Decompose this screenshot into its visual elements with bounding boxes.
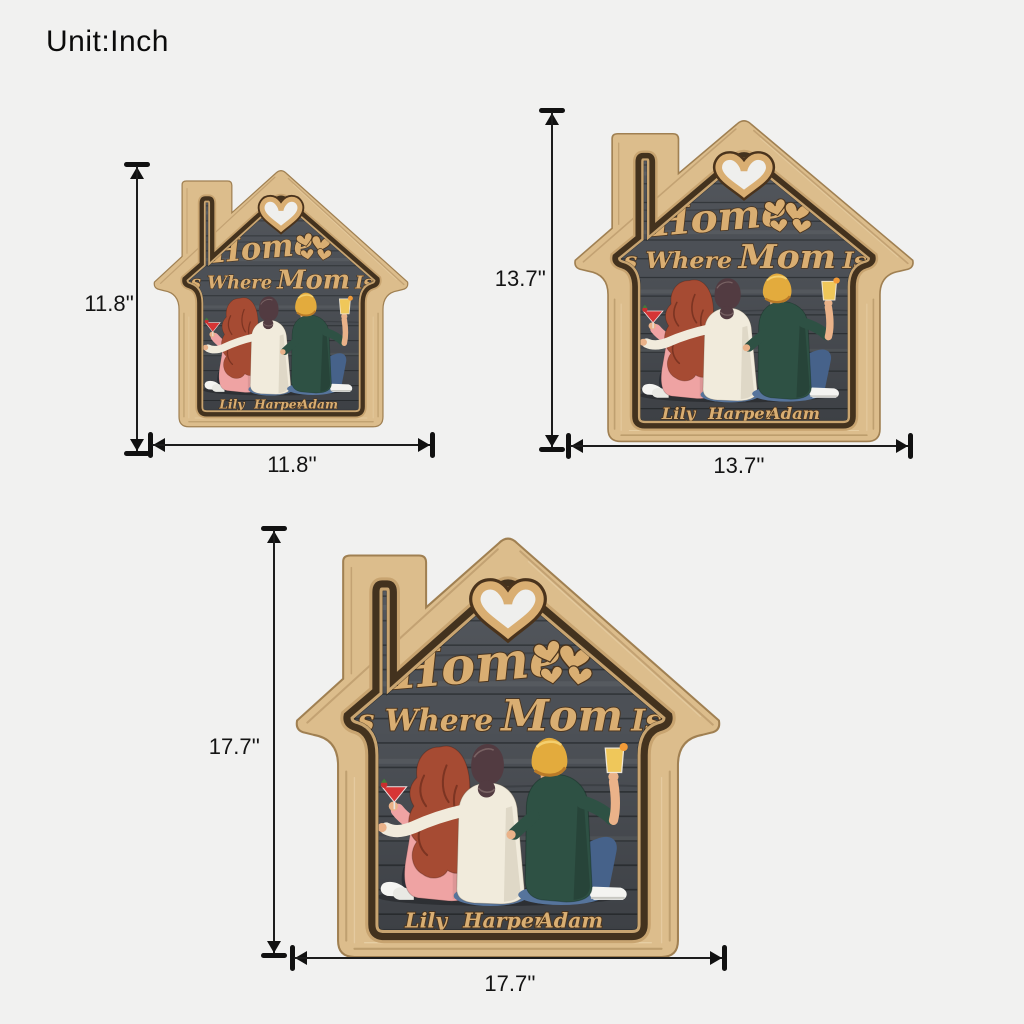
size-chart-canvas: Unit:Inch xyxy=(0,0,1024,1024)
width-value-small: 11.8'' xyxy=(252,452,332,478)
width-value-large: 17.7'' xyxy=(470,971,550,997)
height-dimension-large xyxy=(261,526,287,958)
width-dimension-large xyxy=(290,945,727,971)
height-value-small: 11.8'' xyxy=(70,291,134,317)
width-value-medium: 13.7'' xyxy=(699,453,779,479)
house-sign-preview-medium xyxy=(572,115,916,443)
height-value-medium: 13.7'' xyxy=(482,266,546,292)
house-sign-preview-large xyxy=(293,531,723,959)
height-value-large: 17.7'' xyxy=(196,734,260,760)
unit-label: Unit:Inch xyxy=(46,25,169,59)
house-sign-preview-small xyxy=(152,166,410,428)
